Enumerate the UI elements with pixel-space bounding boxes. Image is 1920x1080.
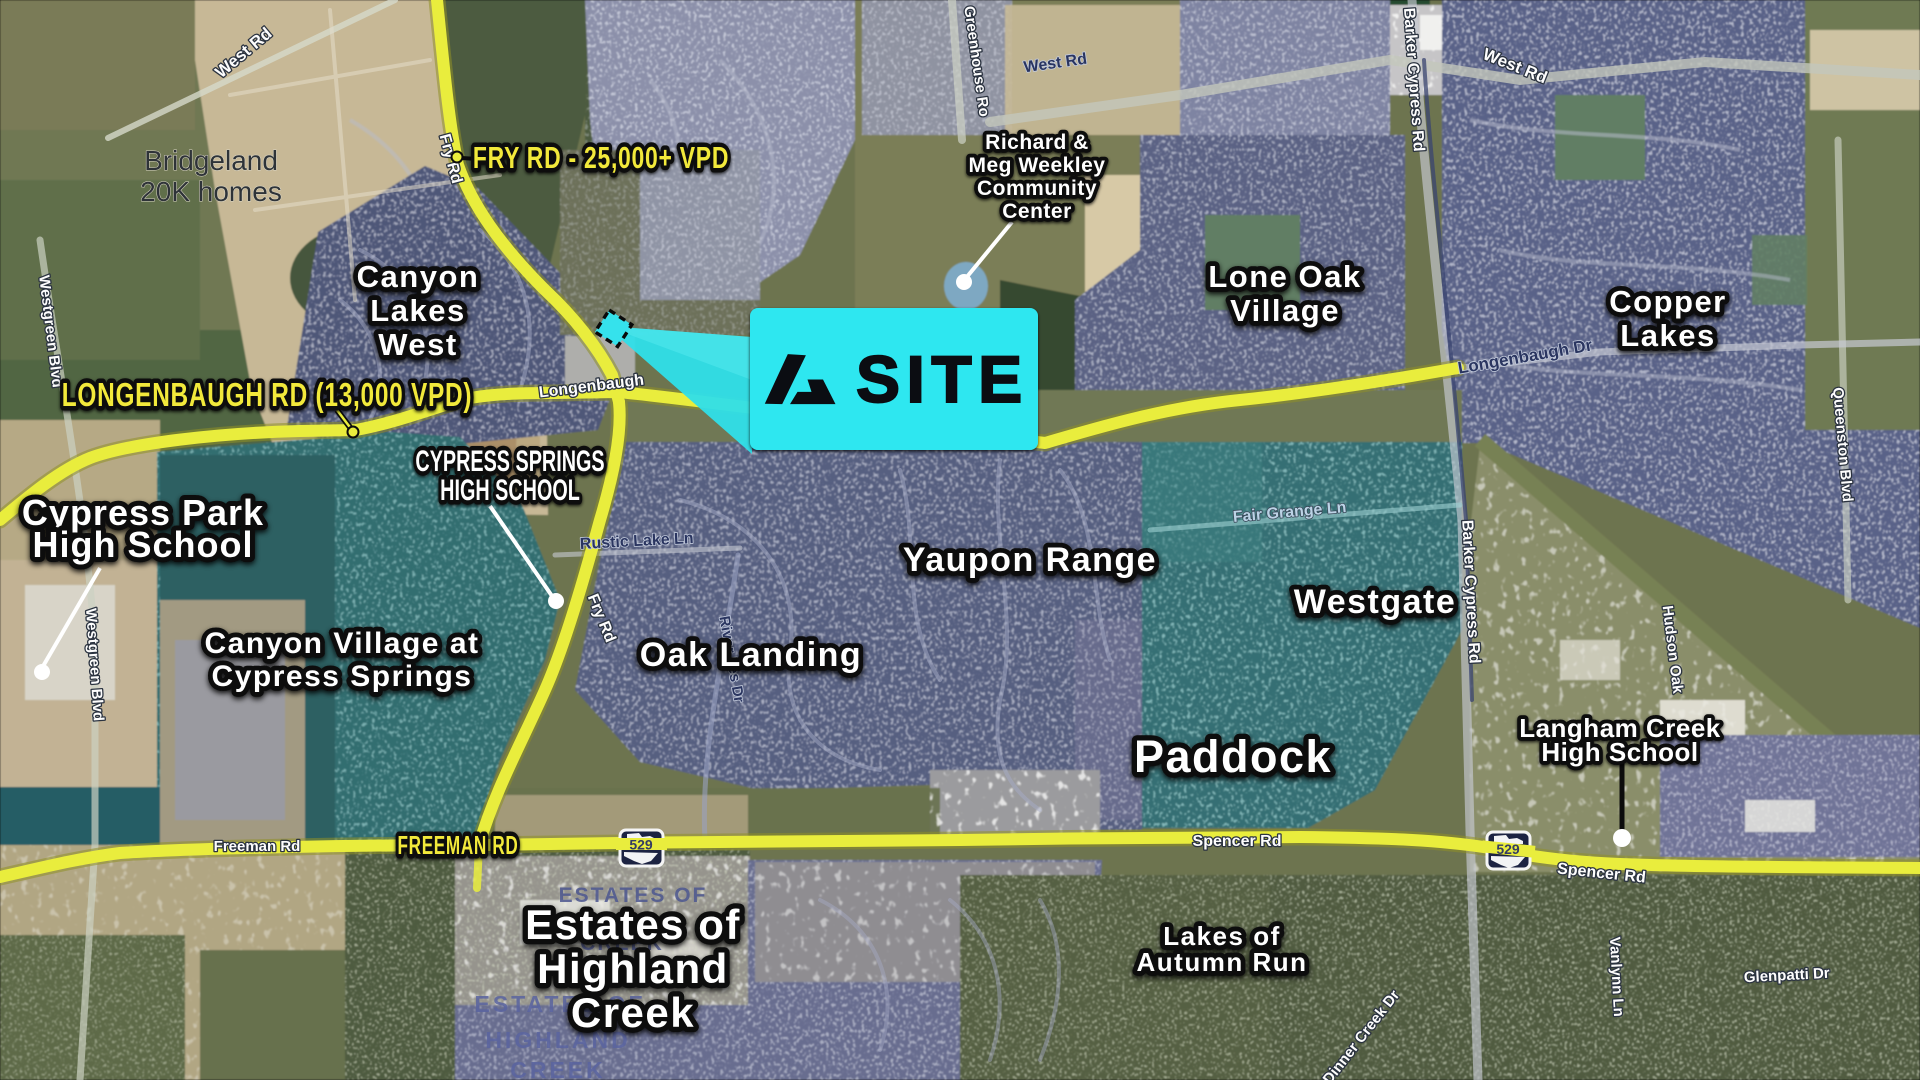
svg-text:Estates of: Estates of — [525, 901, 741, 948]
svg-text:LONGENBAUGH RD (13,000 VPD): LONGENBAUGH RD (13,000 VPD) — [62, 378, 473, 414]
svg-text:20K homes: 20K homes — [140, 176, 282, 207]
svg-text:Lakes: Lakes — [370, 293, 465, 328]
svg-text:Oak Landing: Oak Landing — [640, 636, 862, 674]
svg-text:Cypress Springs: Cypress Springs — [212, 660, 473, 693]
svg-text:CREEK: CREEK — [510, 1057, 606, 1080]
svg-text:Westgate: Westgate — [1294, 583, 1457, 621]
svg-text:Paddock: Paddock — [1134, 731, 1332, 782]
svg-text:Autumn Run: Autumn Run — [1137, 947, 1308, 977]
svg-text:Copper: Copper — [1609, 284, 1727, 319]
svg-text:Yaupon Range: Yaupon Range — [903, 541, 1157, 579]
svg-text:Spencer Rd: Spencer Rd — [1193, 833, 1282, 850]
svg-text:HIGH SCHOOL: HIGH SCHOOL — [440, 474, 580, 507]
svg-text:Community: Community — [977, 177, 1097, 200]
svg-text:High School: High School — [1541, 737, 1698, 767]
svg-text:Meg Weekley: Meg Weekley — [968, 154, 1105, 177]
svg-text:FRY RD - 25,000+ VPD: FRY RD - 25,000+ VPD — [473, 140, 729, 175]
svg-text:High School: High School — [33, 524, 254, 565]
svg-text:Center: Center — [1002, 200, 1072, 223]
svg-text:529: 529 — [1496, 841, 1520, 857]
svg-text:Highland: Highland — [537, 945, 729, 992]
svg-text:Freeman Rd: Freeman Rd — [214, 838, 301, 855]
svg-text:Canyon: Canyon — [357, 259, 480, 294]
svg-text:FREEMAN RD: FREEMAN RD — [398, 830, 519, 860]
svg-text:Canyon Village at: Canyon Village at — [204, 627, 479, 660]
svg-text:SITE: SITE — [856, 342, 1029, 416]
svg-text:Bridgeland: Bridgeland — [144, 145, 278, 176]
svg-text:West: West — [378, 327, 458, 362]
svg-text:Lakes: Lakes — [1620, 318, 1715, 353]
svg-text:Creek: Creek — [571, 989, 695, 1036]
svg-text:Village: Village — [1230, 293, 1340, 328]
svg-text:Richard &: Richard & — [985, 131, 1089, 154]
svg-text:Lone Oak: Lone Oak — [1208, 259, 1361, 294]
svg-text:529: 529 — [629, 837, 653, 853]
